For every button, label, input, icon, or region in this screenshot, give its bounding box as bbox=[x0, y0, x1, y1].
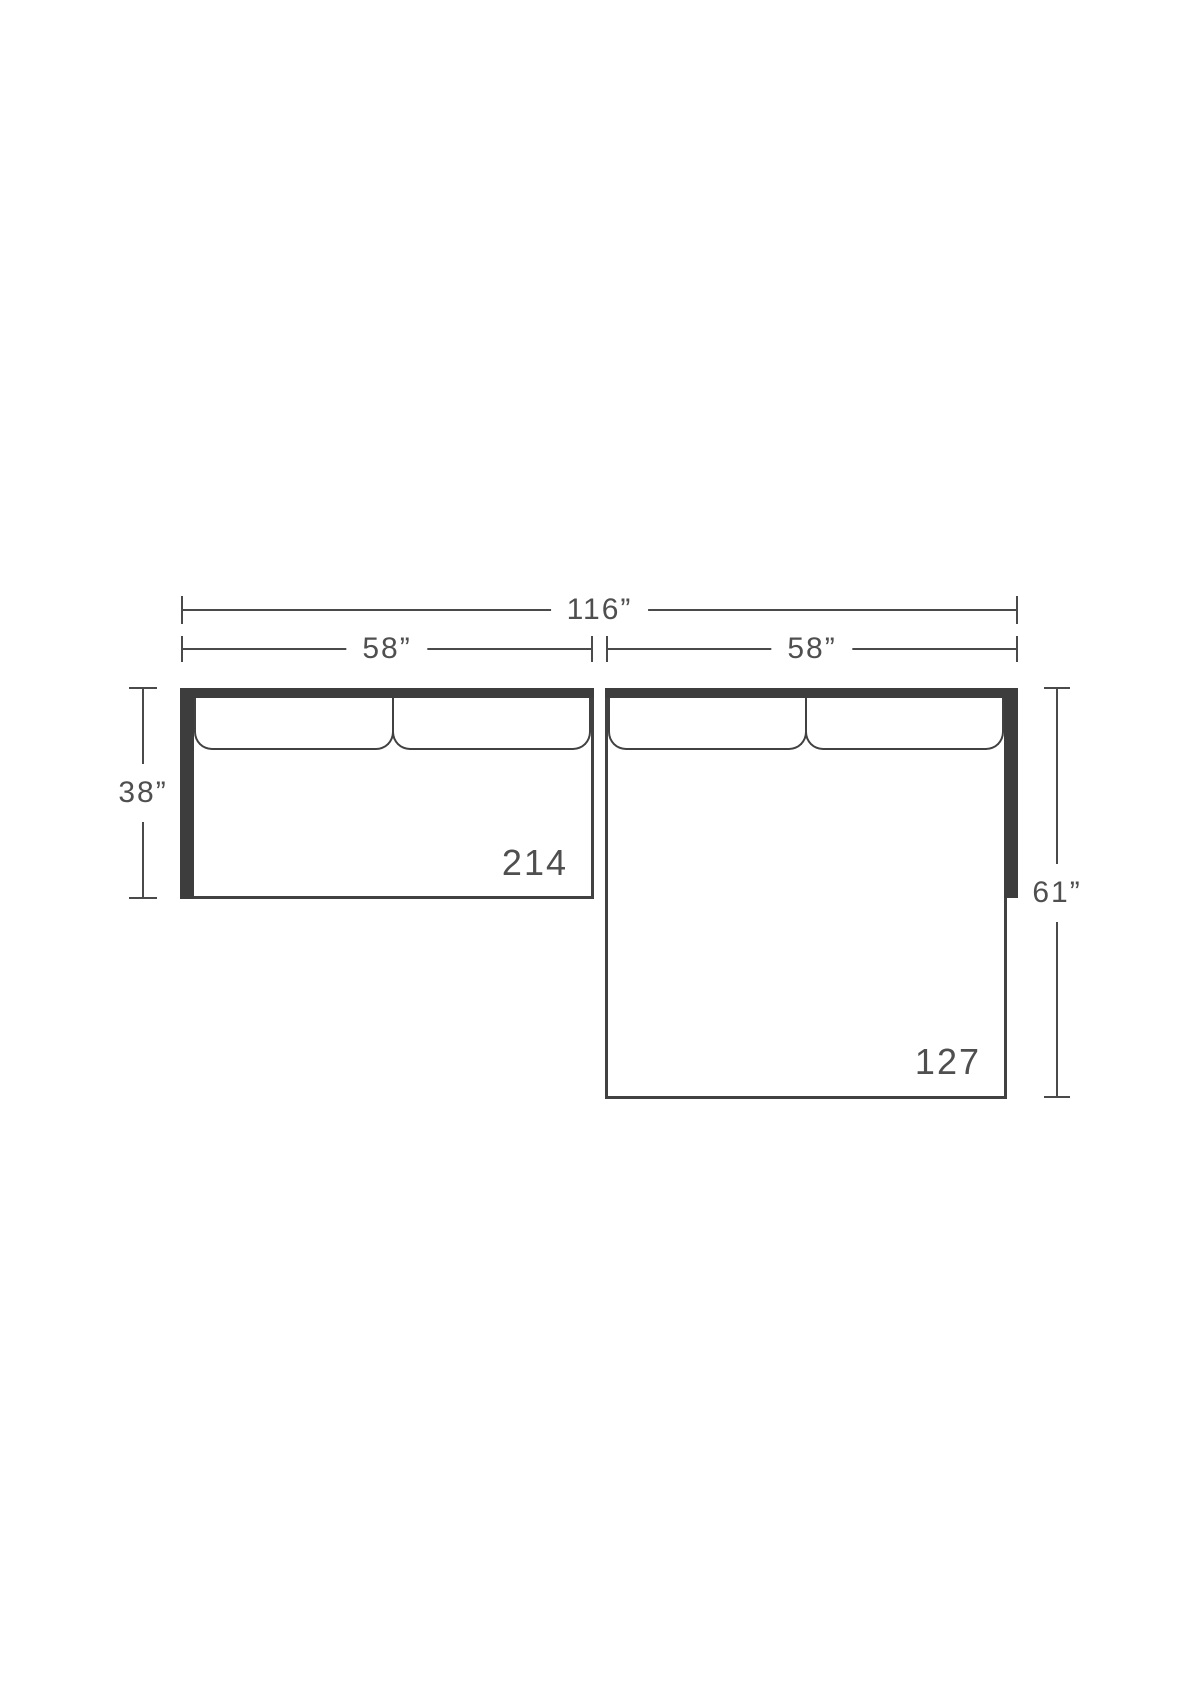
dimension-tick-top bbox=[1044, 687, 1070, 689]
dimension-tick-bottom bbox=[1044, 1096, 1070, 1098]
left-sofa-model-number: 214 bbox=[502, 845, 568, 881]
chaise-arm bbox=[1004, 688, 1018, 898]
dimension-tick-bottom bbox=[129, 897, 157, 899]
chaise-front-edge bbox=[605, 1096, 1007, 1099]
dimension-left-width: 58” bbox=[181, 636, 593, 662]
dimension-tick-right bbox=[1016, 596, 1018, 624]
dimension-tick-left bbox=[181, 636, 183, 662]
section-right-chaise: 127 bbox=[605, 688, 1018, 1099]
chaise-right-edge bbox=[1004, 898, 1007, 1099]
dimension-right-depth-label: 61” bbox=[1032, 864, 1081, 922]
chaise-cushions bbox=[608, 698, 1004, 750]
sofa-dimension-diagram: 116” 58” 58” 38” 61” 214 bbox=[0, 0, 1200, 1700]
dimension-right-width-label: 58” bbox=[771, 634, 852, 664]
dimension-left-depth: 38” bbox=[129, 687, 157, 899]
left-sofa-arm bbox=[180, 688, 194, 899]
dimension-tick-top bbox=[129, 687, 157, 689]
dimension-total-width-label: 116” bbox=[551, 595, 649, 625]
chaise-model-number: 127 bbox=[915, 1044, 981, 1080]
cushion bbox=[194, 698, 394, 750]
cushion bbox=[805, 698, 1004, 750]
section-left-sofa: 214 bbox=[180, 688, 594, 899]
left-sofa-cushions bbox=[194, 698, 591, 750]
chaise-back-panel bbox=[605, 688, 1018, 698]
cushion bbox=[392, 698, 592, 750]
dimension-tick-right bbox=[1016, 636, 1018, 662]
dimension-right-depth: 61” bbox=[1044, 687, 1070, 1098]
chaise-left-edge bbox=[605, 698, 608, 1099]
dimension-total-width: 116” bbox=[181, 596, 1018, 624]
dimension-tick-left bbox=[606, 636, 608, 662]
dimension-tick-left bbox=[181, 596, 183, 624]
dimension-right-width: 58” bbox=[606, 636, 1018, 662]
left-sofa-right-edge bbox=[591, 698, 594, 899]
left-sofa-front-edge bbox=[194, 896, 594, 899]
dimension-left-width-label: 58” bbox=[346, 634, 427, 664]
dimension-tick-right bbox=[591, 636, 593, 662]
left-sofa-back-panel bbox=[180, 688, 594, 698]
dimension-left-depth-label: 38” bbox=[118, 764, 167, 822]
cushion bbox=[608, 698, 807, 750]
